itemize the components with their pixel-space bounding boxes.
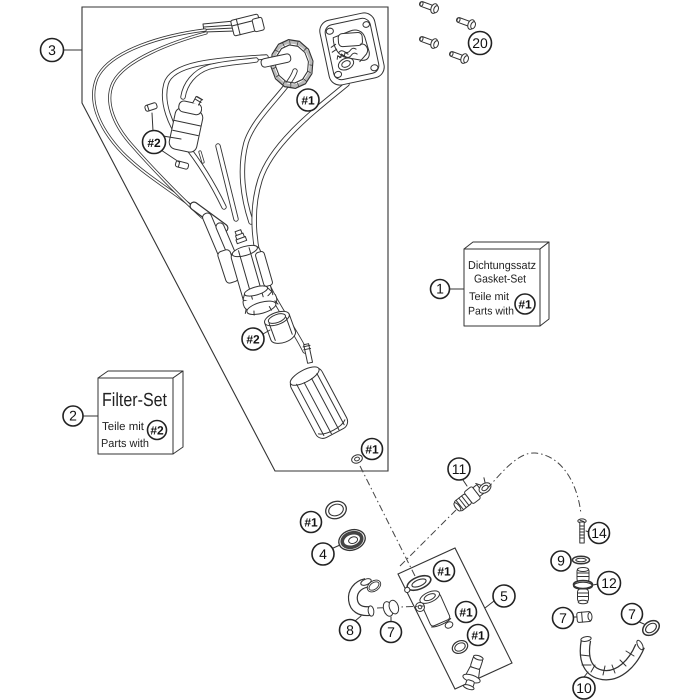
- svg-text:2: 2: [69, 408, 77, 424]
- svg-text:11: 11: [452, 461, 467, 477]
- svg-text:5: 5: [500, 588, 508, 604]
- svg-text:8: 8: [346, 622, 354, 638]
- svg-text:Gasket-Set: Gasket-Set: [474, 274, 527, 286]
- svg-text:20: 20: [472, 35, 488, 51]
- svg-text:#1: #1: [437, 565, 451, 579]
- svg-text:#1: #1: [471, 629, 485, 643]
- svg-text:#1: #1: [304, 516, 318, 530]
- svg-text:10: 10: [576, 680, 592, 696]
- svg-text:3: 3: [48, 42, 56, 58]
- svg-text:#1: #1: [301, 94, 315, 108]
- svg-text:#1: #1: [518, 298, 532, 312]
- svg-text:#1: #1: [365, 443, 379, 457]
- svg-text:#1: #1: [459, 606, 473, 620]
- svg-text:#2: #2: [150, 424, 164, 438]
- svg-text:Parts with: Parts with: [468, 306, 514, 318]
- svg-text:14: 14: [591, 525, 607, 541]
- svg-text:Teile mit: Teile mit: [102, 421, 145, 433]
- svg-text:1: 1: [436, 281, 444, 297]
- svg-text:7: 7: [387, 624, 395, 640]
- svg-text:9: 9: [557, 553, 565, 569]
- svg-text:Dichtungssatz: Dichtungssatz: [468, 260, 536, 272]
- svg-text:#2: #2: [147, 136, 161, 150]
- svg-text:Filter-Set: Filter-Set: [102, 390, 168, 411]
- svg-text:7: 7: [559, 610, 567, 626]
- svg-text:12: 12: [601, 575, 617, 591]
- svg-text:Teile mit: Teile mit: [469, 291, 509, 303]
- svg-text:7: 7: [628, 606, 636, 622]
- svg-text:#2: #2: [246, 333, 260, 347]
- svg-text:Parts with: Parts with: [101, 438, 149, 450]
- svg-text:4: 4: [319, 546, 327, 562]
